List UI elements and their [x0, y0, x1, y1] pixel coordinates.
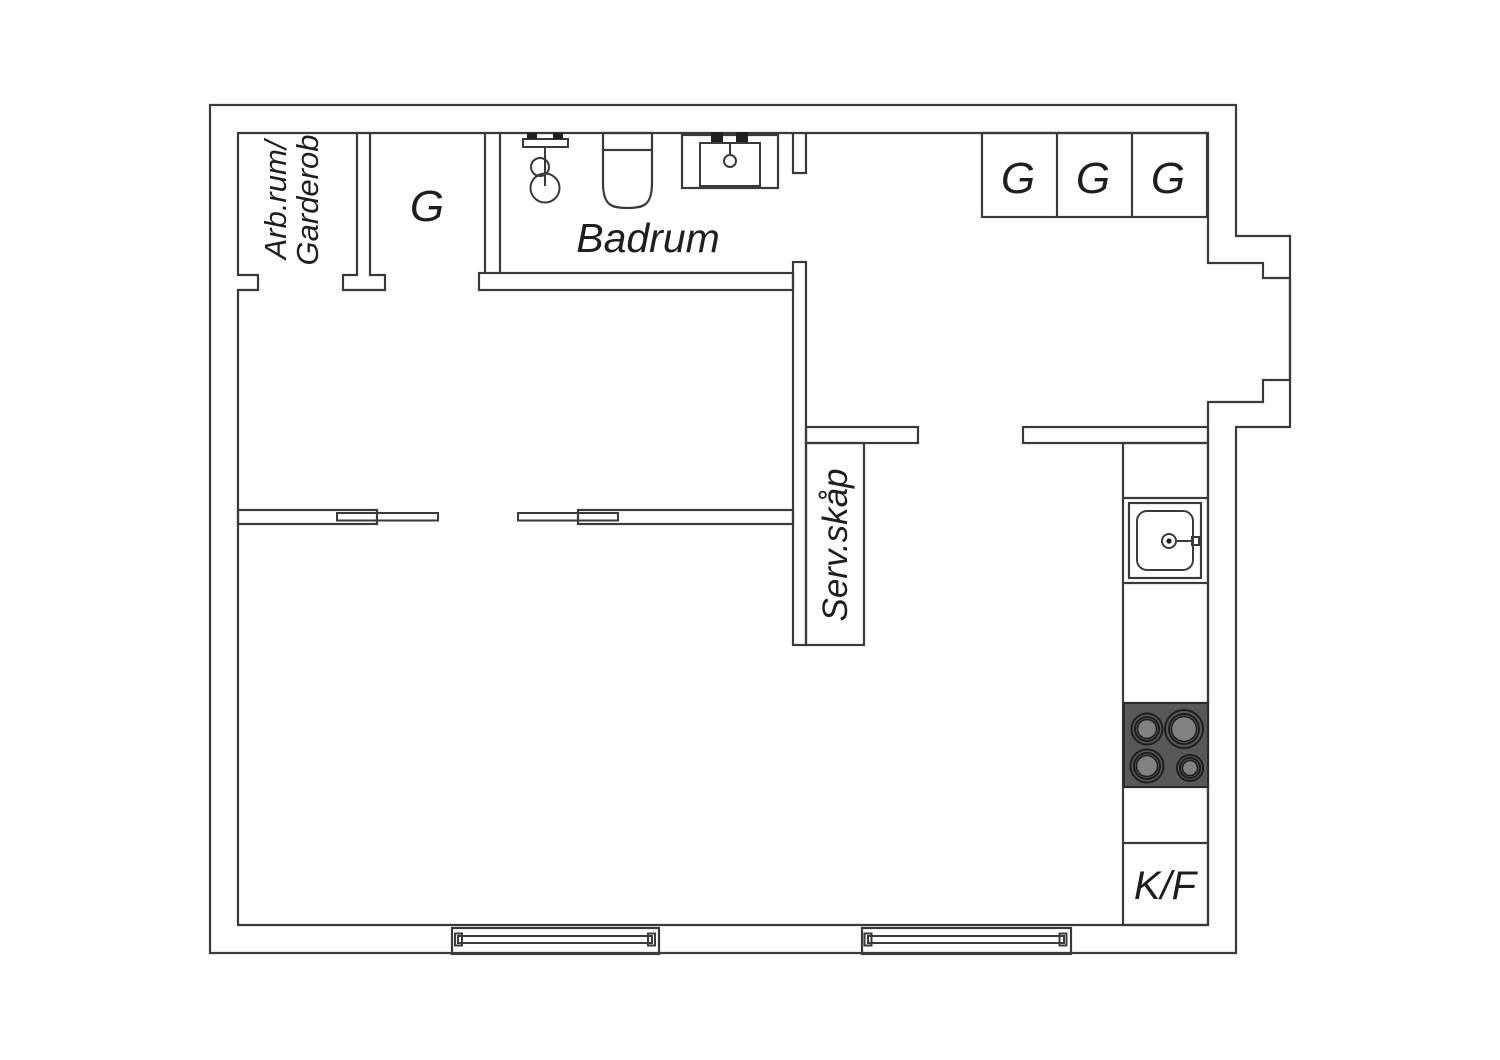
sliding-door-leaf-left	[337, 513, 438, 521]
bathroom-south-wall	[479, 273, 793, 290]
closet-topleft-label: G	[410, 182, 444, 231]
fridge-freezer-label: K/F	[1134, 864, 1199, 908]
service-cabinet-label-group: Serv.skåp	[816, 468, 855, 621]
hall-wall-left-segment	[806, 427, 918, 443]
workroom-label-line1: Arb.rum/	[258, 137, 293, 261]
closet-right-label-2: G	[1076, 154, 1110, 203]
kitchen-sink-icon	[1129, 503, 1201, 578]
workroom-label-line2: Garderob	[290, 135, 325, 266]
floorplan-page: Arb.rum/ Garderob G Badrum G G G Serv.sk…	[0, 0, 1500, 1060]
workroom-label-group: Arb.rum/ Garderob	[258, 135, 325, 266]
window-left	[452, 928, 659, 954]
shower-mixer-icon	[523, 133, 568, 203]
central-vertical-wall	[793, 262, 806, 645]
toilet-icon	[603, 133, 652, 208]
floorplan-drawing: Arb.rum/ Garderob G Badrum G G G Serv.sk…	[0, 0, 1500, 1060]
window-right	[862, 928, 1071, 954]
closet-divider-wall-1	[343, 133, 385, 290]
closet-divider-wall-2	[485, 133, 500, 273]
entry-wall-stub	[793, 133, 806, 173]
closet-right-label-3: G	[1151, 154, 1185, 203]
inner-wall-outline	[238, 133, 1290, 925]
service-cabinet-label: Serv.skåp	[816, 468, 855, 621]
hall-wall-right-segment	[1023, 427, 1208, 443]
bathroom-sink-icon	[682, 132, 778, 188]
kitchen-counter-outline	[1123, 443, 1208, 925]
bathroom-label: Badrum	[576, 215, 720, 261]
middle-wall	[238, 510, 793, 524]
closet-right-label-1: G	[1001, 154, 1035, 203]
bathroom-fixtures	[523, 132, 778, 208]
sliding-door-leaf-right	[518, 513, 618, 521]
kitchen-counter	[1123, 443, 1208, 925]
kitchen-counter-dividers	[1123, 498, 1208, 843]
stove-icon	[1124, 703, 1208, 787]
